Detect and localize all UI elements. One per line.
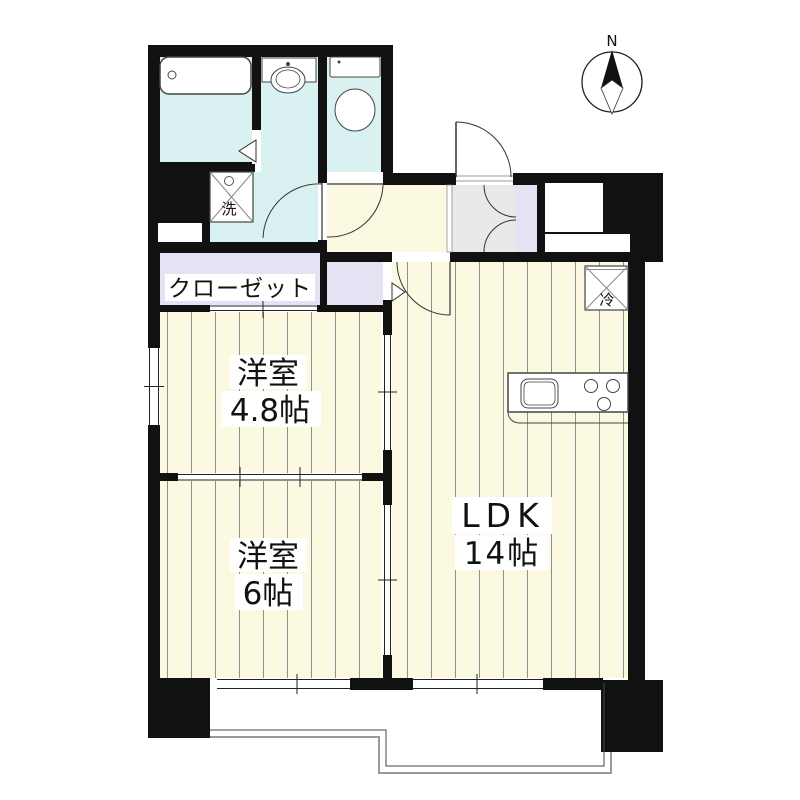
meter-box (545, 183, 603, 232)
compass-n-label: N (606, 32, 617, 50)
entrance-door-swing-arc (456, 122, 511, 177)
stove-burner-icon (607, 380, 620, 393)
room-6-size: 6帖 (243, 576, 294, 612)
entrance-tile (452, 185, 515, 252)
room-4-8-name: 洋室 (237, 356, 299, 392)
ldk-door-opening (392, 252, 450, 262)
washing-machine-space: 洗 (210, 172, 253, 222)
refrigerator-space: 冷 (585, 266, 628, 310)
compass-icon: N (582, 32, 642, 114)
balcony (210, 683, 611, 773)
stove-burner-icon (585, 380, 598, 393)
entrance-opening (456, 173, 513, 185)
toilet-flush-icon (338, 61, 341, 64)
ldk-floor (392, 262, 628, 678)
ldk-size: 14帖 (464, 536, 540, 572)
toilet-bowl-icon (335, 89, 375, 131)
shoe-cabinet (515, 185, 537, 252)
room-6-name: 洋室 (237, 539, 299, 575)
open-corridor (545, 234, 630, 252)
pipe-space (158, 223, 202, 242)
washer-label: 洗 (221, 200, 236, 218)
closet-2-floor (327, 262, 383, 305)
closet-label: クローゼット (168, 276, 312, 302)
floor-plan: 洗 冷 N クローゼット (0, 0, 800, 800)
balcony-inner-rail (210, 683, 604, 766)
fridge-label: 冷 (599, 291, 614, 309)
closet-2-door-opening (383, 262, 392, 300)
entrance-step (447, 185, 452, 252)
stove-burner-icon (598, 398, 611, 411)
faucet-icon (286, 62, 290, 66)
kitchen-sink-icon (521, 379, 558, 408)
room-4-8-size: 4.8帖 (230, 393, 310, 429)
ldk-name: LDK (461, 496, 544, 535)
floor-plan-canvas: 洗 冷 N クローゼット (0, 0, 800, 800)
hallway-floor (327, 185, 448, 252)
bathtub-icon (160, 57, 251, 94)
toilet-door-opening (327, 172, 383, 185)
toilet-tank-icon (330, 57, 380, 77)
balcony-outer-rail (210, 737, 611, 773)
